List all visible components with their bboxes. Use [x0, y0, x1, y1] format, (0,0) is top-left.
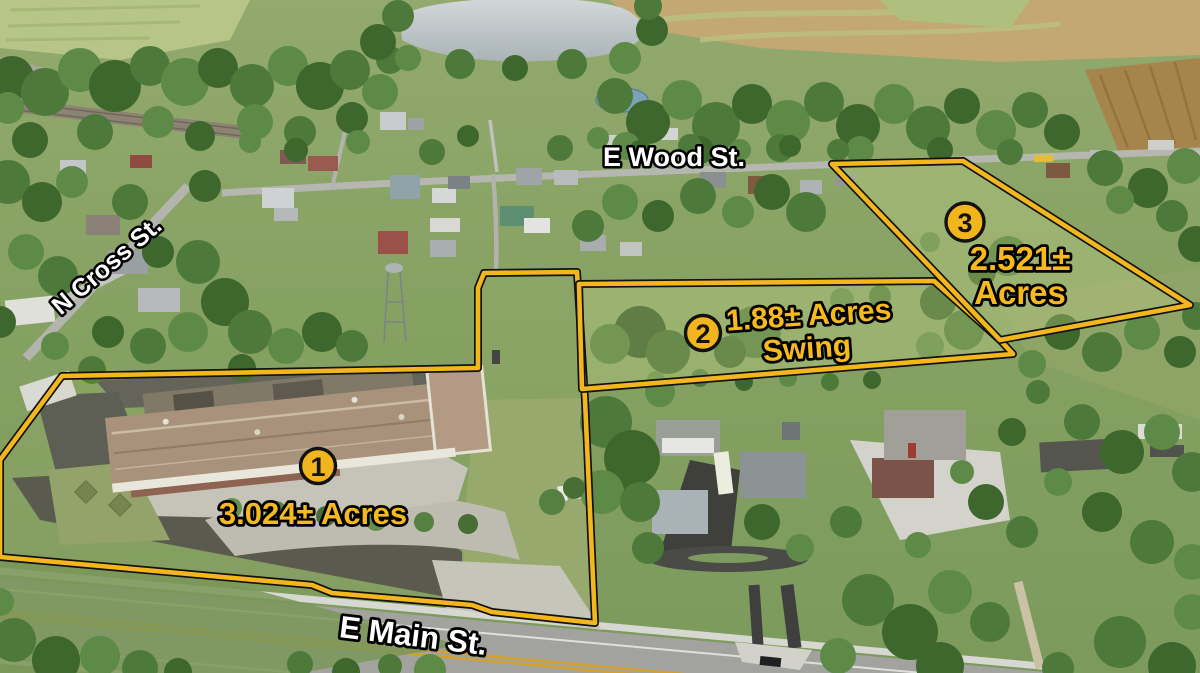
parcel-1-badge: 1 [301, 449, 336, 484]
svg-text:Swing: Swing [762, 329, 852, 368]
pond [400, 0, 644, 61]
parcel-1-acreage-label: 3.024± Acres [219, 496, 407, 531]
svg-text:2.521±: 2.521± [970, 240, 1071, 277]
parcel-2-number: 2 [695, 319, 710, 349]
parcel-2-badge: 2 [686, 316, 721, 351]
parcel-3-acreage-label: 2.521± Acres [970, 240, 1071, 311]
svg-text:Acres: Acres [974, 274, 1066, 311]
parcel-1-number: 1 [310, 452, 325, 482]
parcel-3-number: 3 [957, 208, 972, 238]
parcel-3-badge: 3 [946, 203, 984, 241]
aerial-photo: 1 2 3 3.024± Acres 1.88± Acres Swing 2.5… [0, 0, 1200, 673]
street-label-e-wood: E Wood St. [603, 142, 745, 172]
